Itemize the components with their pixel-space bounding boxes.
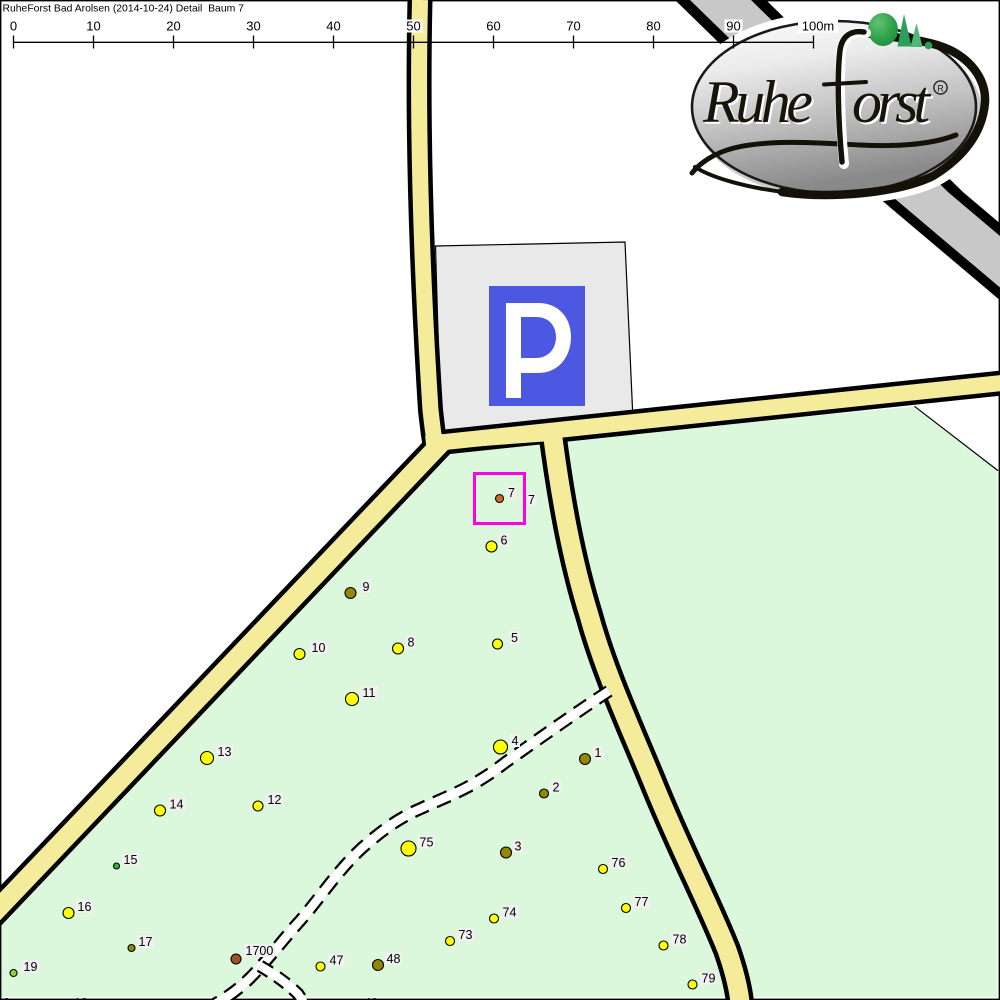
svg-text:14: 14: [170, 798, 184, 812]
svg-text:7: 7: [508, 486, 515, 500]
svg-text:13: 13: [218, 745, 232, 759]
svg-text:6: 6: [501, 534, 508, 548]
svg-text:60: 60: [486, 19, 500, 34]
svg-text:5: 5: [511, 631, 518, 645]
svg-text:3: 3: [515, 840, 522, 854]
svg-text:47: 47: [330, 954, 344, 968]
svg-text:16: 16: [78, 900, 92, 914]
svg-text:18: 18: [74, 996, 88, 1000]
svg-text:7: 7: [528, 493, 535, 507]
svg-text:9: 9: [363, 580, 370, 594]
svg-text:74: 74: [503, 906, 517, 920]
svg-text:76: 76: [612, 856, 626, 870]
svg-text:10: 10: [312, 641, 326, 655]
svg-text:orst: orst: [852, 69, 931, 135]
svg-text:R: R: [937, 84, 944, 94]
svg-text:Ruhe: Ruhe: [702, 69, 813, 135]
svg-text:17: 17: [139, 935, 153, 949]
svg-text:RuheForst Bad Arolsen (2014-10: RuheForst Bad Arolsen (2014-10-24) Detai…: [3, 4, 245, 15]
svg-text:10: 10: [86, 19, 100, 34]
svg-text:48: 48: [387, 952, 401, 966]
svg-text:12: 12: [268, 793, 282, 807]
svg-text:8: 8: [408, 636, 415, 650]
svg-text:80: 80: [646, 19, 660, 34]
svg-text:0: 0: [10, 19, 17, 34]
svg-text:77: 77: [635, 895, 649, 909]
svg-text:20: 20: [166, 19, 180, 34]
svg-text:30: 30: [246, 19, 260, 34]
svg-text:90: 90: [726, 19, 740, 34]
svg-text:11: 11: [363, 686, 376, 700]
svg-text:100m: 100m: [802, 19, 835, 34]
svg-text:75: 75: [420, 836, 434, 850]
svg-text:79: 79: [702, 972, 716, 986]
svg-text:49: 49: [364, 996, 378, 1000]
svg-text:70: 70: [566, 19, 580, 34]
svg-text:4: 4: [512, 734, 519, 748]
svg-text:15: 15: [124, 853, 138, 867]
svg-text:1700: 1700: [246, 944, 274, 958]
svg-text:73: 73: [459, 928, 473, 942]
svg-text:78: 78: [673, 933, 687, 947]
svg-text:40: 40: [326, 19, 340, 34]
svg-text:1: 1: [595, 746, 602, 760]
svg-text:50: 50: [406, 19, 420, 34]
svg-text:20: 20: [0, 996, 10, 1000]
svg-text:19: 19: [24, 960, 38, 974]
svg-text:2: 2: [553, 781, 560, 795]
